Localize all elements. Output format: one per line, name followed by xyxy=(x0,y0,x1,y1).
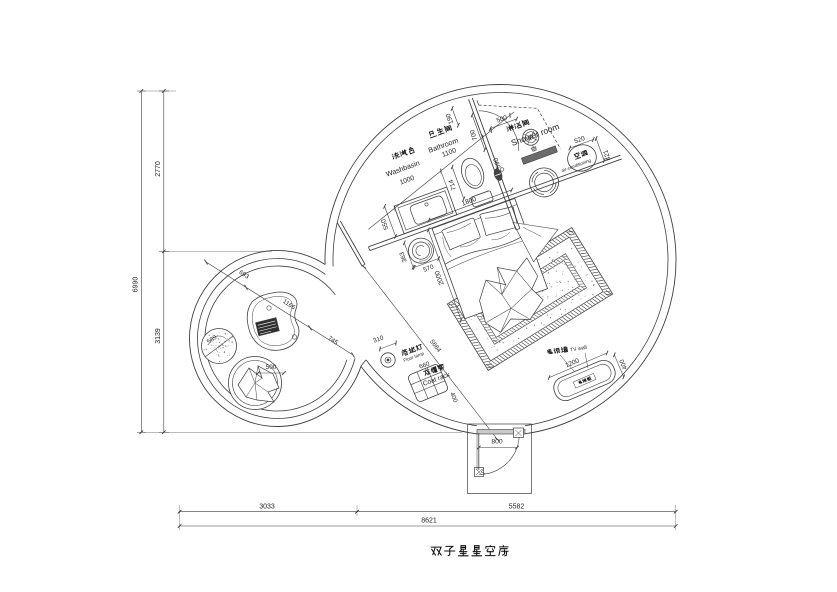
svg-text:3139: 3139 xyxy=(155,328,162,344)
svg-text:5582: 5582 xyxy=(509,504,525,511)
svg-text:500: 500 xyxy=(266,364,277,371)
svg-text:800: 800 xyxy=(491,439,503,446)
svg-text:6990: 6990 xyxy=(133,277,140,293)
svg-text:2770: 2770 xyxy=(155,161,162,177)
svg-text:3033: 3033 xyxy=(259,504,275,511)
svg-text:8621: 8621 xyxy=(421,518,437,525)
